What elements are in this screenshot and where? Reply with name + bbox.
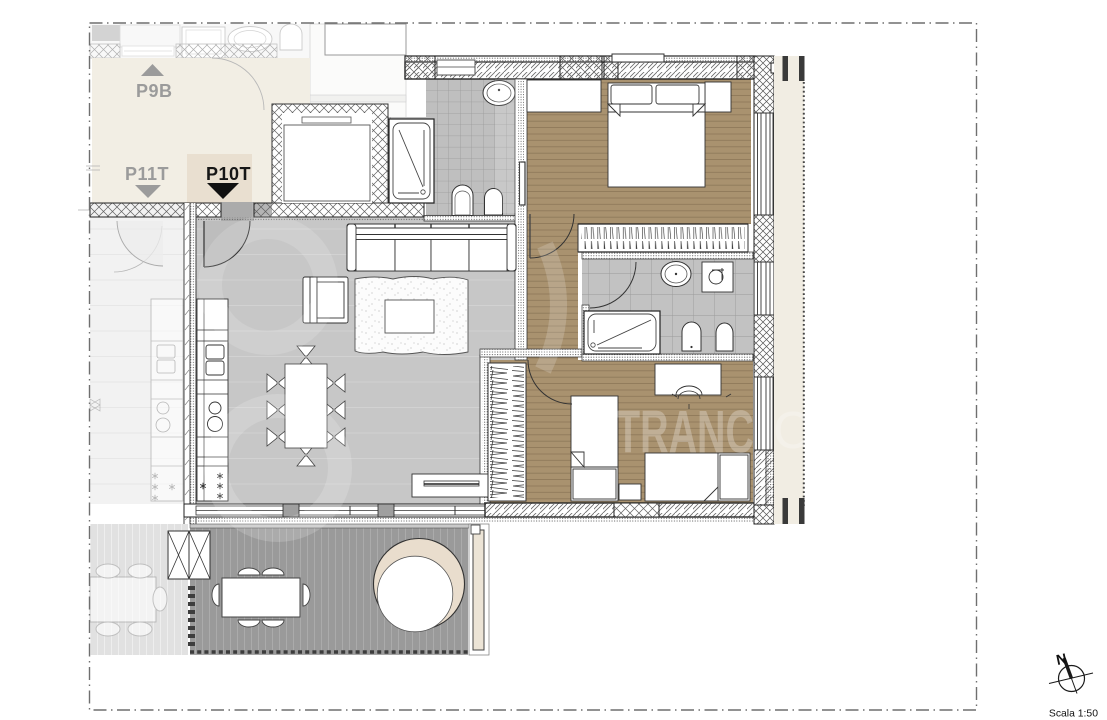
svg-text:TRANC: TRANC <box>616 399 754 466</box>
svg-text:P10T: P10T <box>206 164 251 184</box>
svg-text:Scala 1:50: Scala 1:50 <box>1049 709 1098 720</box>
svg-text:P9B: P9B <box>136 81 173 101</box>
svg-text:P11T: P11T <box>125 164 169 184</box>
svg-text:C: C <box>773 402 811 460</box>
